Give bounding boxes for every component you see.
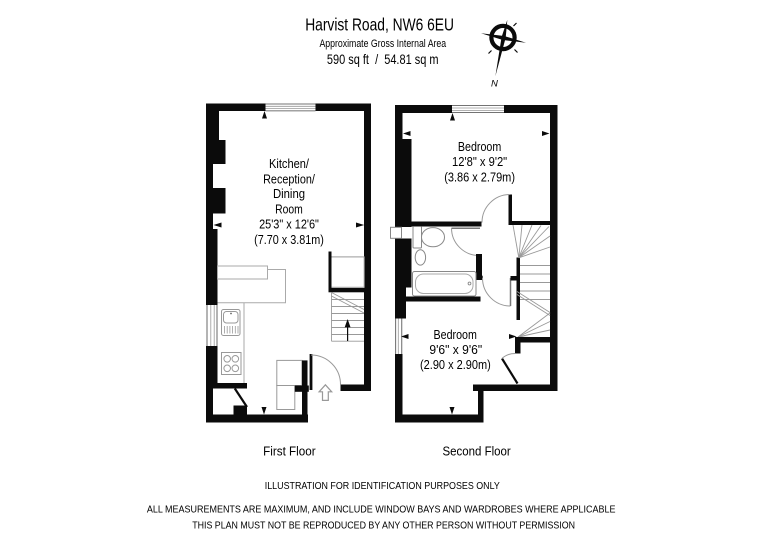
svg-text:Bedroom: Bedroom: [434, 327, 477, 342]
svg-text:(2.90 x 2.90m): (2.90 x 2.90m): [420, 357, 491, 372]
svg-text:Second Floor: Second Floor: [442, 444, 510, 458]
svg-text:Kitchen/: Kitchen/: [269, 156, 309, 171]
svg-text:9'6" x 9'6": 9'6" x 9'6": [429, 342, 482, 357]
svg-text:Room: Room: [275, 201, 303, 216]
svg-text:Reception/: Reception/: [263, 171, 315, 186]
svg-text:First Floor: First Floor: [263, 444, 316, 458]
svg-text:(3.86 x 2.79m): (3.86 x 2.79m): [444, 169, 515, 184]
svg-text:590 sq ft / 54.81 sq m: 590 sq ft / 54.81 sq m: [327, 51, 439, 67]
svg-text:25'3" x 12'6": 25'3" x 12'6": [259, 216, 319, 231]
svg-text:Dining: Dining: [273, 186, 305, 201]
svg-text:Approximate Gross Internal Are: Approximate Gross Internal Area: [319, 38, 446, 50]
svg-text:Bedroom: Bedroom: [458, 139, 501, 154]
svg-text:12'8" x 9'2": 12'8" x 9'2": [452, 154, 507, 169]
svg-text:THIS PLAN MUST NOT BE REPRODUC: THIS PLAN MUST NOT BE REPRODUCED BY ANY …: [192, 520, 575, 531]
svg-text:ALL MEASUREMENTS ARE MAXIMUM,: ALL MEASUREMENTS ARE MAXIMUM, AND INCLUD…: [147, 505, 616, 516]
svg-text:ILLUSTRATION FOR IDENTIFICATIO: ILLUSTRATION FOR IDENTIFICATION PURPOSES…: [265, 480, 500, 492]
svg-text:Harvist Road, NW6 6EU: Harvist Road, NW6 6EU: [305, 15, 454, 35]
svg-text:N: N: [491, 79, 498, 90]
svg-text:(7.70 x 3.81m): (7.70 x 3.81m): [254, 232, 324, 247]
